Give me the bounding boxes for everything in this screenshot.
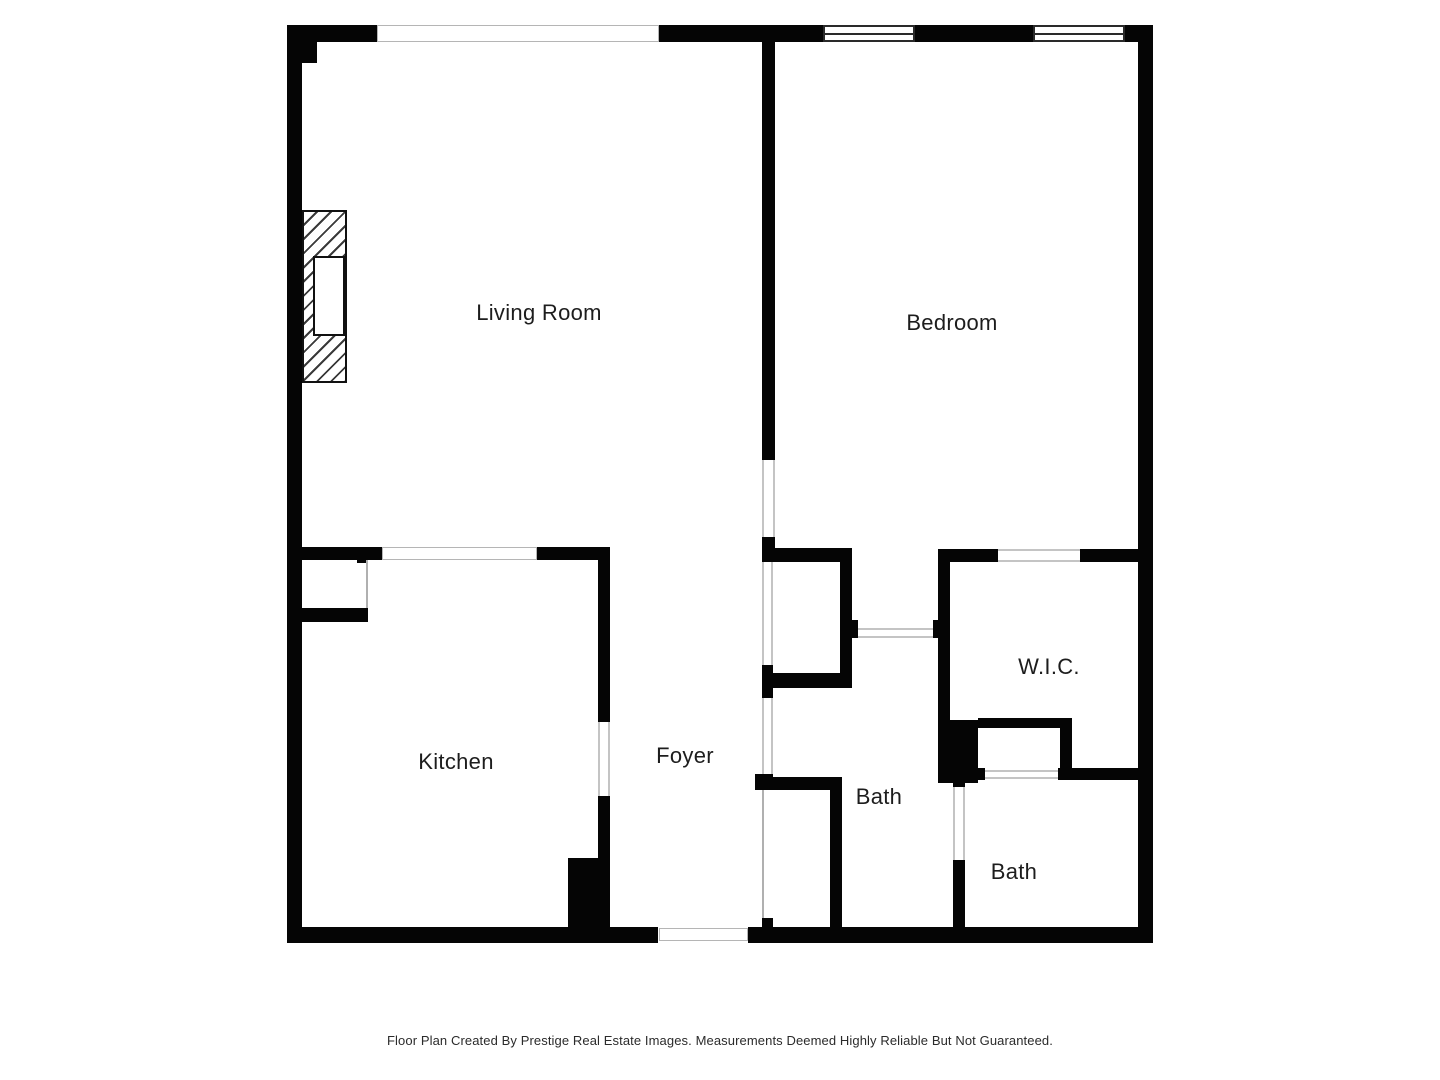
room-label-living-room: Living Room <box>439 299 639 327</box>
fireplace-symbol <box>302 210 347 383</box>
wall <box>748 927 1153 943</box>
wall <box>840 548 852 673</box>
window-symbol <box>823 25 915 42</box>
wall <box>1072 768 1140 780</box>
wall <box>287 25 302 940</box>
wall <box>598 560 610 722</box>
door-opening <box>858 628 933 638</box>
door-opening <box>762 460 775 537</box>
wall <box>762 42 775 460</box>
wall <box>659 25 823 42</box>
wall <box>755 774 773 790</box>
closet-door-opening <box>985 770 1058 779</box>
wall <box>762 673 852 688</box>
wall <box>598 796 610 860</box>
wall <box>938 549 950 720</box>
wall <box>537 547 610 560</box>
window-midline <box>825 33 913 35</box>
closet-door-line <box>762 790 764 918</box>
door-opening <box>998 549 1080 562</box>
wall <box>568 858 610 928</box>
room-label-kitchen: Kitchen <box>356 748 556 776</box>
wall <box>978 718 1072 728</box>
pantry-opening <box>366 560 368 608</box>
wall <box>915 25 1033 42</box>
fireplace-firebox <box>313 256 345 336</box>
room-label-bedroom: Bedroom <box>852 309 1052 337</box>
wall <box>1080 549 1140 562</box>
room-label-wic: W.I.C. <box>949 653 1149 681</box>
entry-door-opening <box>659 928 748 941</box>
wall <box>1058 768 1072 780</box>
pass-through-opening <box>382 547 537 560</box>
window-midline <box>1035 33 1123 35</box>
wall <box>762 918 773 928</box>
closet-door-opening <box>762 562 773 665</box>
room-label-bath-2: Bath <box>914 858 1114 886</box>
wall <box>843 620 858 638</box>
wall <box>1060 718 1072 775</box>
wall <box>302 547 382 560</box>
wall <box>1138 25 1153 943</box>
wall <box>302 608 368 622</box>
floor-plan: Living Room Bedroom Kitchen Foyer Bath W… <box>0 0 1440 1080</box>
window-symbol <box>1033 25 1125 42</box>
room-label-bath-1: Bath <box>779 783 979 811</box>
room-label-foyer: Foyer <box>585 742 785 770</box>
wall <box>978 768 985 780</box>
window-band <box>377 25 659 42</box>
wall <box>287 927 658 943</box>
wall <box>938 720 978 783</box>
footer-disclaimer: Floor Plan Created By Prestige Real Esta… <box>0 1033 1440 1048</box>
wall <box>302 42 317 63</box>
